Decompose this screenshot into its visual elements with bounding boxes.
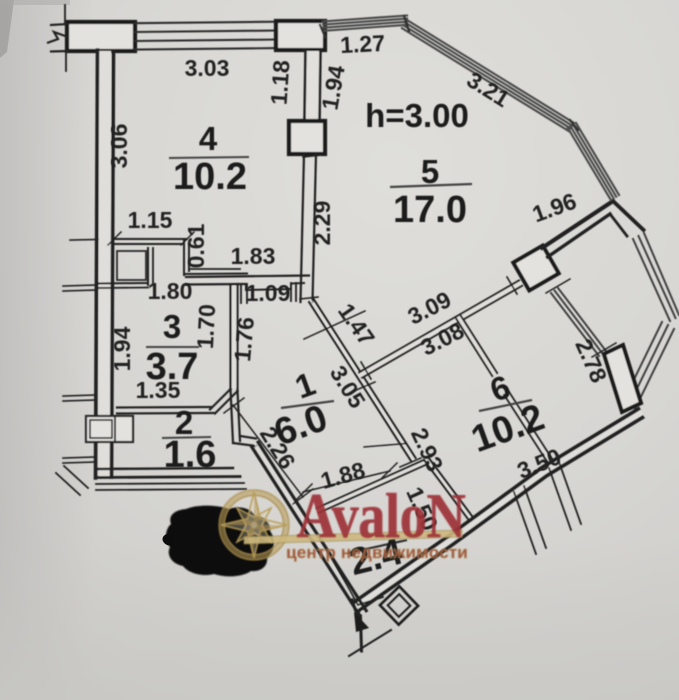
svg-text:10.2: 10.2 (173, 156, 247, 198)
svg-text:1.83: 1.83 (231, 243, 276, 269)
svg-text:3.03: 3.03 (185, 55, 230, 81)
svg-text:17.0: 17.0 (393, 189, 467, 231)
svg-text:1.35: 1.35 (136, 377, 181, 403)
svg-text:1.15: 1.15 (128, 207, 173, 233)
svg-text:1.70: 1.70 (192, 304, 220, 350)
svg-text:AvaloN: AvaloN (297, 480, 466, 551)
svg-text:1.94: 1.94 (109, 326, 135, 371)
svg-text:1.09: 1.09 (246, 280, 291, 306)
svg-text:h=3.00: h=3.00 (365, 97, 469, 134)
svg-text:1.6: 1.6 (164, 434, 217, 476)
svg-text:1.76: 1.76 (229, 316, 259, 363)
svg-text:1.18: 1.18 (265, 59, 294, 106)
svg-text:3: 3 (163, 308, 181, 345)
svg-text:3.06: 3.06 (106, 124, 132, 169)
svg-text:1.80: 1.80 (148, 278, 193, 304)
svg-text:0.61: 0.61 (183, 223, 209, 268)
svg-text:1.27: 1.27 (340, 30, 386, 58)
svg-text:центр недвижимости: центр недвижимости (286, 543, 468, 562)
svg-text:2.29: 2.29 (309, 201, 335, 246)
svg-text:4: 4 (199, 120, 218, 157)
